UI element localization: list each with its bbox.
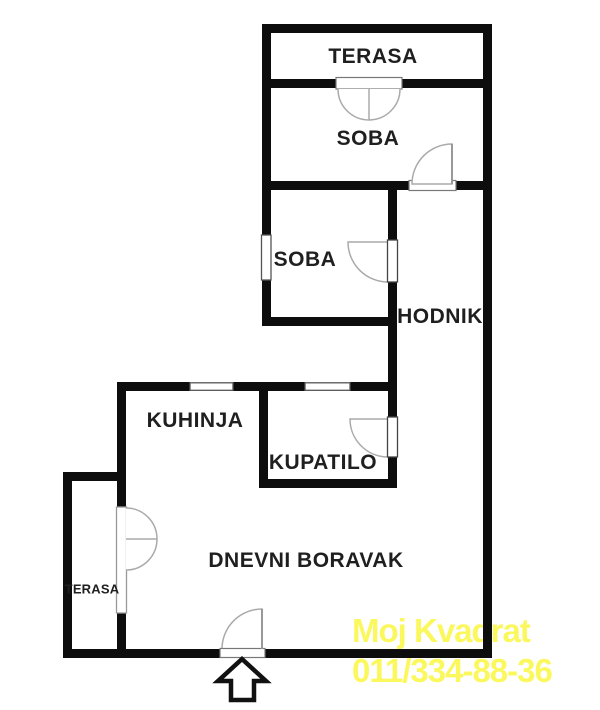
door-panel <box>388 417 398 457</box>
door-soba1-hodnik <box>409 144 456 191</box>
floor-plan-canvas: Moj Kvadrat 011/334-88-36 <box>0 0 600 710</box>
entrance-arrow-icon <box>218 659 266 700</box>
floor-plan-drawing <box>0 0 600 710</box>
door-dnevni-terasa <box>117 507 158 613</box>
room-label-soba-2: SOBA <box>274 248 337 272</box>
room-label-hodnik: HODNIK <box>397 305 483 329</box>
room-label-dnevni-boravak: DNEVNI BORAVAK <box>208 549 403 573</box>
wall-segment <box>63 472 72 658</box>
wall-segment <box>388 281 397 417</box>
wall-segment <box>350 382 397 391</box>
wall-segment <box>259 479 397 488</box>
wall-segment <box>402 79 492 88</box>
wall-segment <box>259 382 268 488</box>
window-icon <box>190 383 233 391</box>
wall-segment <box>483 24 492 658</box>
door-threshold <box>220 649 265 658</box>
room-label-soba-1: SOBA <box>337 127 400 151</box>
window-icon <box>305 383 350 391</box>
wall-segment <box>456 181 492 190</box>
door-entrance <box>220 609 265 658</box>
door-threshold <box>336 78 402 90</box>
wall-segment <box>233 382 305 391</box>
door-terasa-soba <box>336 78 402 121</box>
wall-segment <box>262 24 492 33</box>
door-swing-icon <box>222 609 262 649</box>
wall-segment <box>388 181 397 240</box>
wall-segment <box>265 649 492 658</box>
window-icon <box>262 235 272 280</box>
wall-segment <box>117 382 190 391</box>
door-swing-icon <box>348 242 388 282</box>
wall-segment <box>262 181 410 190</box>
wall-segment <box>262 79 336 88</box>
door-panel <box>117 507 127 613</box>
door-swing-icon <box>412 144 452 184</box>
room-label-terasa-top: TERASA <box>328 45 417 69</box>
door-soba2 <box>348 240 398 282</box>
wall-segment <box>117 382 126 507</box>
wall-segment <box>262 317 397 326</box>
wall-segment <box>262 24 271 235</box>
wall-segment <box>63 649 220 658</box>
room-label-kuhinja: KUHINJA <box>147 409 244 433</box>
wall-segment <box>63 472 126 481</box>
door-panel <box>388 240 398 282</box>
room-label-terasa-left: TERASA <box>65 582 120 597</box>
room-label-kupatilo: KUPATILO <box>269 451 377 475</box>
